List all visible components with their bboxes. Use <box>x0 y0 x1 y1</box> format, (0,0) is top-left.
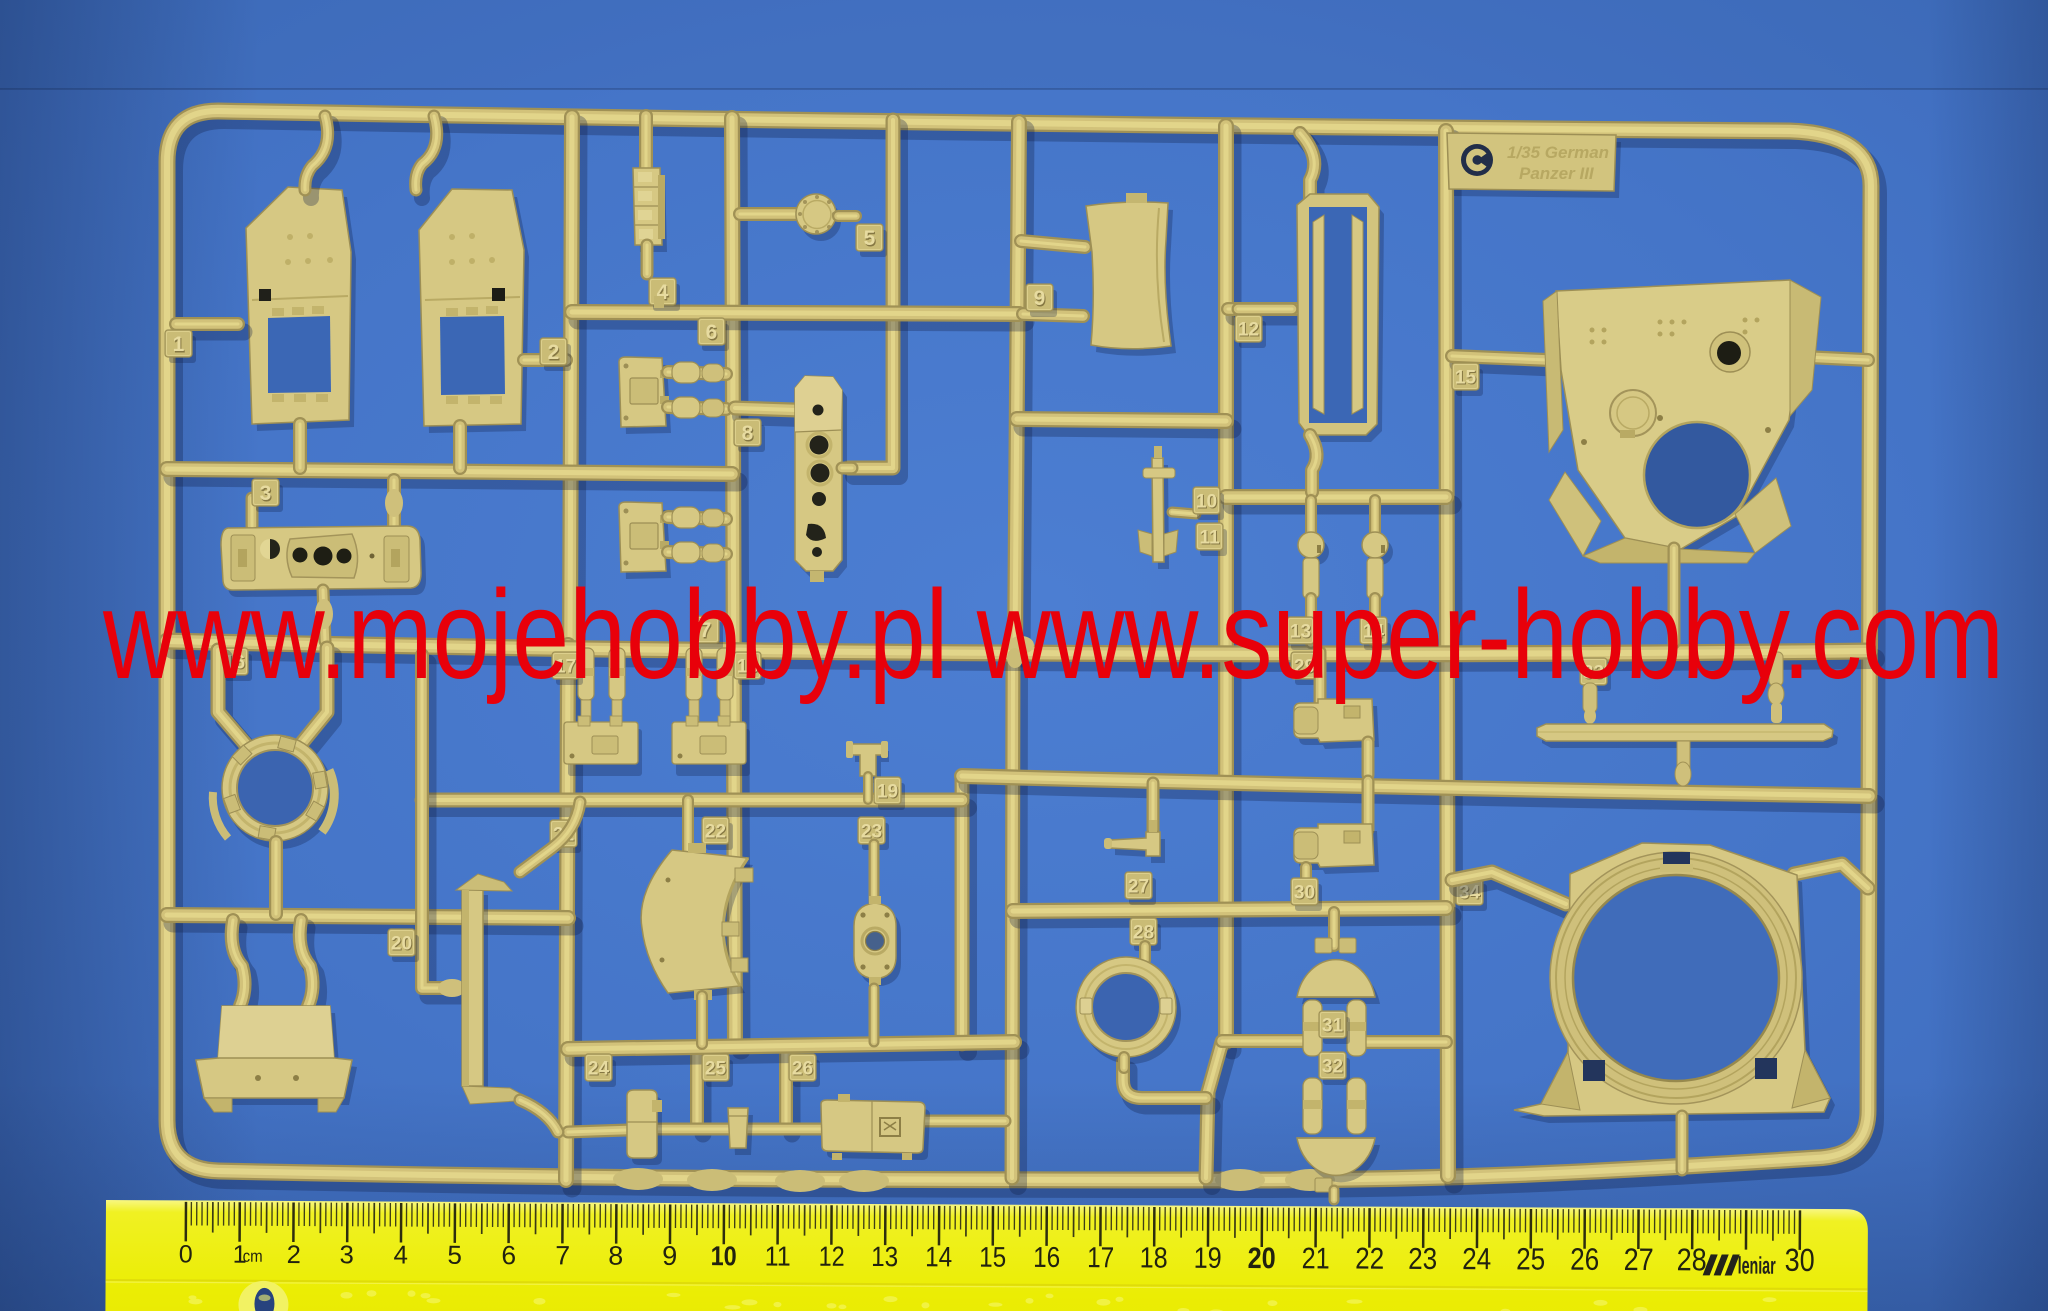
svg-text:25: 25 <box>705 1058 727 1079</box>
svg-text:31: 31 <box>1322 1015 1344 1036</box>
svg-text:www.mojehobby.pl www.super-hob: www.mojehobby.pl www.super-hobby.com <box>102 564 2004 705</box>
svg-text:leniar: leniar <box>1738 1253 1776 1280</box>
svg-text:9: 9 <box>662 1240 677 1271</box>
svg-text:cm: cm <box>243 1247 263 1266</box>
svg-text:9: 9 <box>1034 287 1046 310</box>
svg-text:25: 25 <box>1516 1241 1545 1276</box>
svg-text:3: 3 <box>260 482 272 505</box>
svg-text:5: 5 <box>447 1240 462 1270</box>
svg-text:8: 8 <box>742 422 754 445</box>
svg-text:26: 26 <box>792 1058 813 1079</box>
svg-text:32: 32 <box>1322 1056 1343 1077</box>
svg-text:10: 10 <box>711 1240 737 1271</box>
svg-text:Panzer III: Panzer III <box>1519 164 1595 183</box>
svg-text:2: 2 <box>287 1241 301 1269</box>
svg-text:15: 15 <box>979 1242 1006 1274</box>
svg-text:1: 1 <box>173 333 185 356</box>
svg-text:5: 5 <box>864 227 876 250</box>
svg-text:2: 2 <box>548 341 560 364</box>
svg-text:1/35 German: 1/35 German <box>1507 143 1609 162</box>
svg-text:12: 12 <box>819 1241 845 1272</box>
svg-text:23: 23 <box>1408 1243 1437 1276</box>
svg-text:18: 18 <box>1140 1242 1168 1274</box>
svg-text:11: 11 <box>765 1240 791 1271</box>
svg-text:28: 28 <box>1133 922 1154 943</box>
svg-text:8: 8 <box>608 1241 623 1271</box>
svg-text:4: 4 <box>393 1242 408 1270</box>
svg-text:27: 27 <box>1624 1242 1654 1277</box>
svg-text:28: 28 <box>1677 1242 1707 1277</box>
svg-text:16: 16 <box>1033 1242 1060 1274</box>
svg-text:12: 12 <box>1238 319 1259 340</box>
svg-text:0: 0 <box>179 1240 193 1268</box>
svg-text:26: 26 <box>1570 1242 1599 1277</box>
svg-text:17: 17 <box>1087 1242 1114 1274</box>
svg-text:7: 7 <box>555 1240 570 1270</box>
svg-text:22: 22 <box>705 821 726 842</box>
svg-text:24: 24 <box>588 1058 610 1079</box>
svg-text:14: 14 <box>925 1240 952 1272</box>
svg-text:19: 19 <box>877 781 898 802</box>
svg-text:19: 19 <box>1194 1242 1222 1275</box>
svg-text:27: 27 <box>1128 876 1149 897</box>
svg-text:20: 20 <box>1248 1242 1276 1275</box>
svg-text:22: 22 <box>1355 1243 1384 1276</box>
svg-text:3: 3 <box>339 1241 353 1269</box>
svg-text:24: 24 <box>1462 1242 1491 1276</box>
svg-text:13: 13 <box>871 1241 898 1272</box>
svg-text:6: 6 <box>501 1240 516 1270</box>
svg-text:10: 10 <box>1196 491 1217 512</box>
svg-text:6: 6 <box>706 321 718 344</box>
svg-text:30: 30 <box>1294 882 1315 903</box>
svg-text:20: 20 <box>391 933 412 954</box>
svg-text:30: 30 <box>1785 1242 1815 1278</box>
svg-text:11: 11 <box>1199 527 1220 548</box>
svg-text:21: 21 <box>1302 1242 1330 1275</box>
svg-text:15: 15 <box>1455 367 1477 388</box>
